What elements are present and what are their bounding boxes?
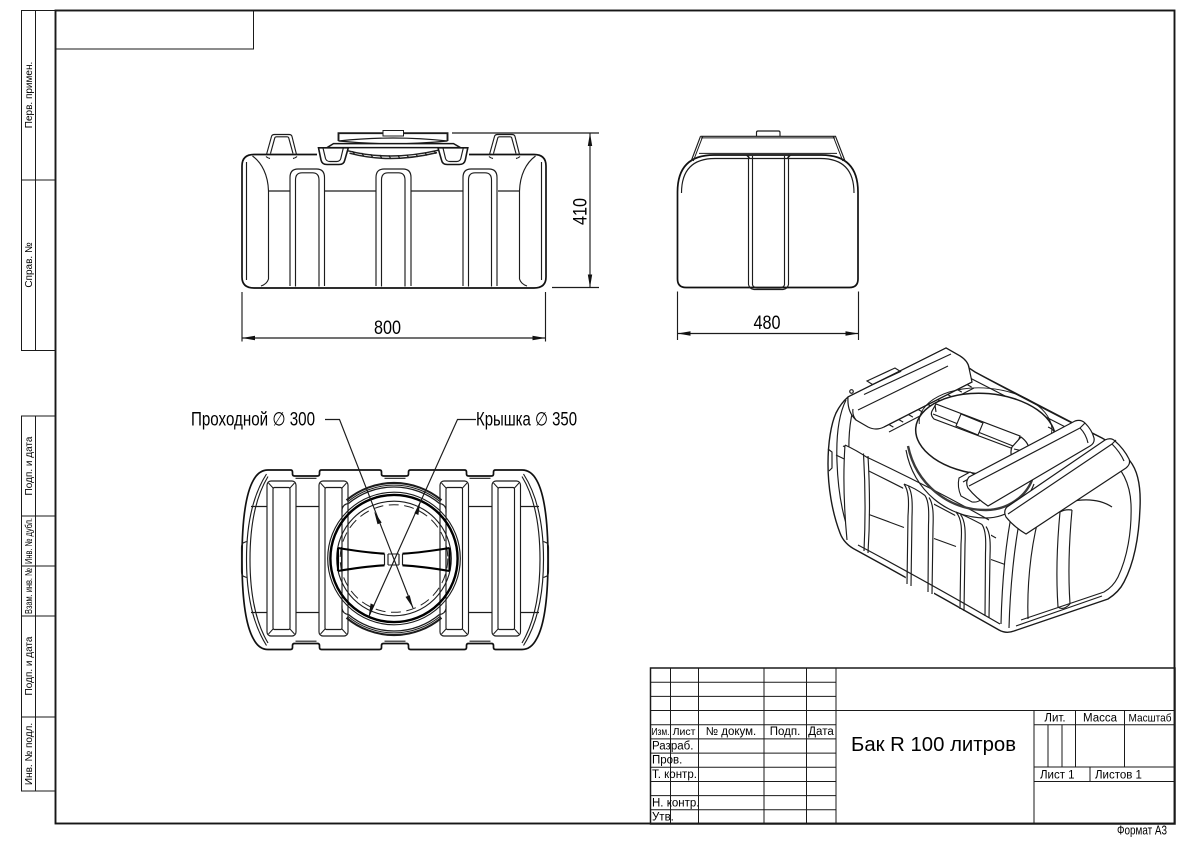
svg-text:Подп. и дата: Подп. и дата [24,436,35,495]
svg-text:Формат А3: Формат А3 [1117,823,1167,838]
svg-text:Масса: Масса [1083,713,1118,725]
svg-text:Бак R 100 литров: Бак R 100 литров [851,733,1016,756]
svg-text:Крышка ∅ 350: Крышка ∅ 350 [476,410,577,431]
svg-text:Т. контр.: Т. контр. [652,769,697,781]
svg-text:Н. контр.: Н. контр. [652,798,699,810]
svg-text:Перв. примен.: Перв. примен. [24,62,35,128]
svg-text:Инв. № дубл.: Инв. № дубл. [23,518,35,564]
svg-text:Лист 1: Лист 1 [1040,770,1075,782]
svg-text:Изм.: Изм. [652,727,670,738]
svg-text:Лит.: Лит. [1044,713,1065,725]
svg-text:Масштаб: Масштаб [1129,713,1172,725]
svg-text:Проходной ∅ 300: Проходной ∅ 300 [191,410,315,431]
svg-text:Подп. и дата: Подп. и дата [24,636,35,695]
svg-text:Подп.: Подп. [770,726,801,738]
svg-text:Справ. №: Справ. № [24,242,35,288]
svg-text:Лист: Лист [673,726,696,738]
svg-text:Утв.: Утв. [652,812,674,824]
svg-text:Дата: Дата [808,726,834,738]
svg-text:800: 800 [374,317,401,339]
svg-text:Взам. инв. №: Взам. инв. № [24,568,35,614]
svg-text:480: 480 [754,312,781,334]
svg-text:Пров.: Пров. [652,755,682,767]
svg-text:Инв. № подл.: Инв. № подл. [24,723,35,785]
svg-text:Разраб.: Разраб. [652,741,693,753]
svg-text:Листов 1: Листов 1 [1095,770,1142,782]
svg-text:410: 410 [570,198,592,225]
svg-text:№ докум.: № докум. [706,726,757,738]
